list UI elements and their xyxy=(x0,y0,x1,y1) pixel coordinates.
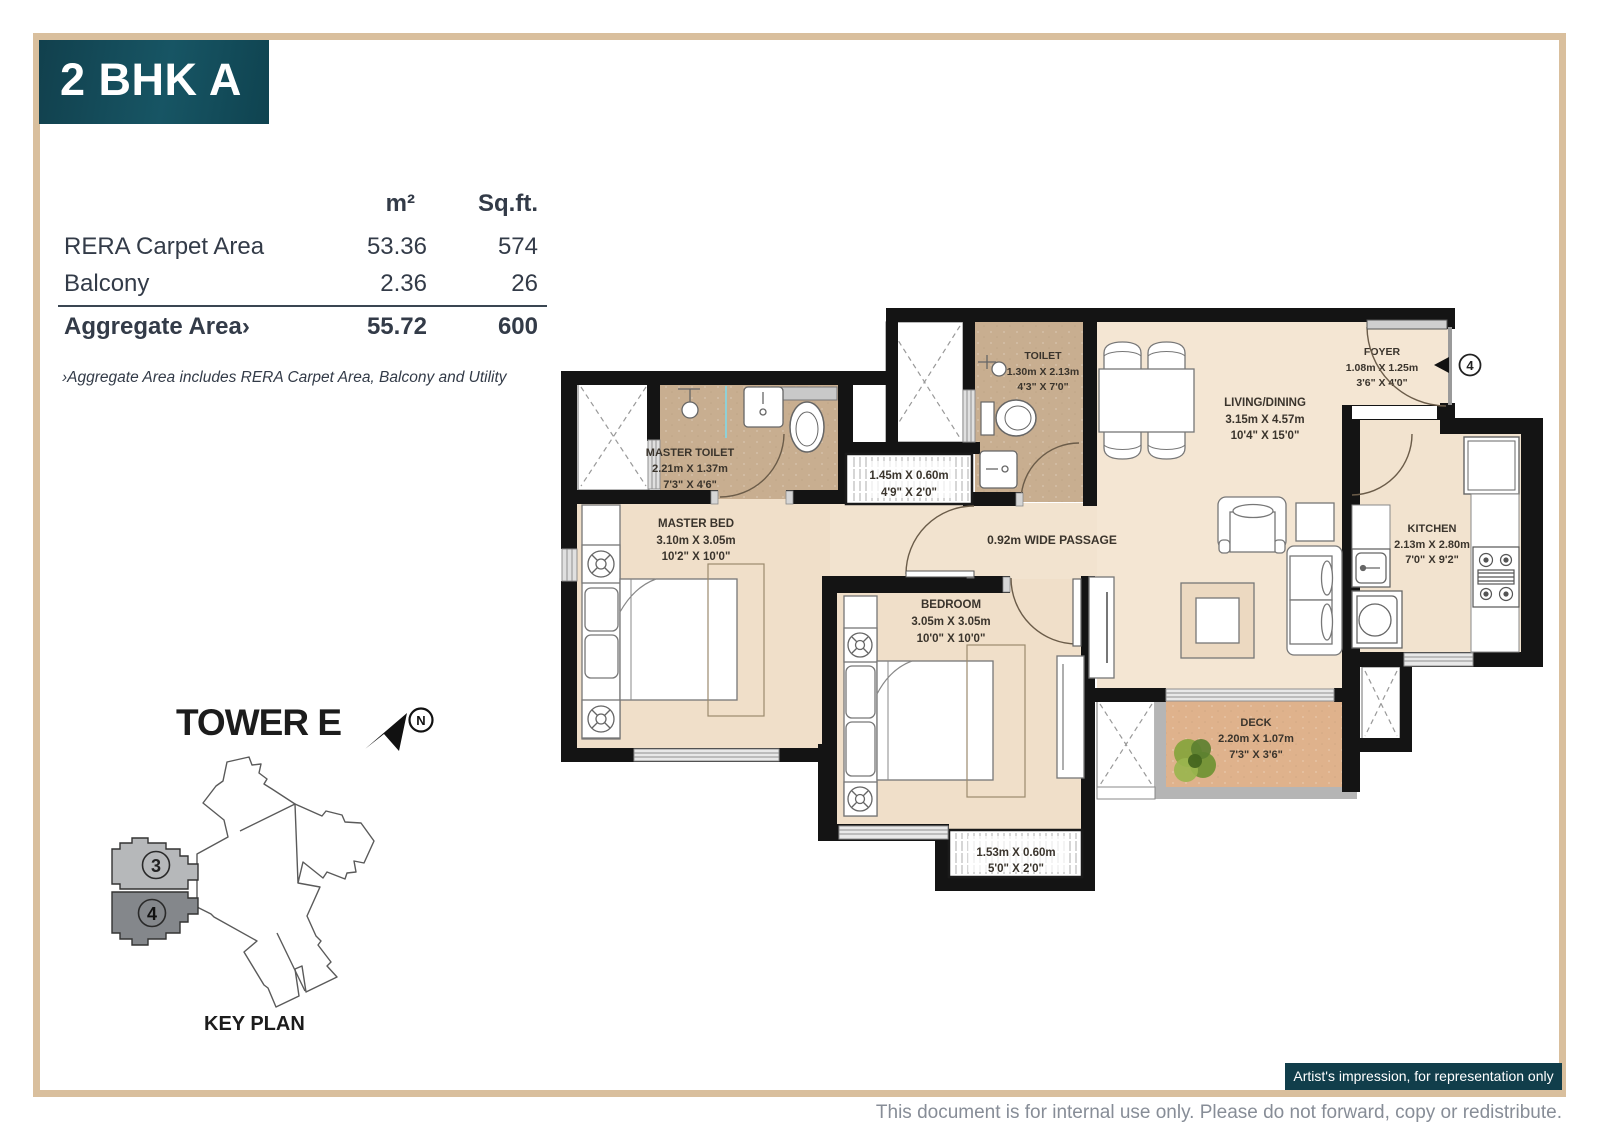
svg-text:0.92m WIDE PASSAGE: 0.92m WIDE PASSAGE xyxy=(987,533,1117,547)
svg-text:1.30m X 2.13m: 1.30m X 2.13m xyxy=(1007,366,1079,378)
svg-text:BEDROOM: BEDROOM xyxy=(921,599,981,611)
svg-text:2.20m X 1.07m: 2.20m X 1.07m xyxy=(1218,733,1294,745)
svg-text:10'4" X 15'0": 10'4" X 15'0" xyxy=(1231,430,1300,442)
svg-text:1.53m X 0.60m: 1.53m X 0.60m xyxy=(976,847,1055,859)
svg-text:KITCHEN: KITCHEN xyxy=(1408,523,1457,535)
svg-text:7'3" X 4'6": 7'3" X 4'6" xyxy=(663,479,717,491)
svg-text:LIVING/DINING: LIVING/DINING xyxy=(1224,397,1306,409)
svg-text:4: 4 xyxy=(147,904,157,924)
svg-text:MASTER TOILET: MASTER TOILET xyxy=(646,447,735,459)
svg-text:4'9" X 2'0": 4'9" X 2'0" xyxy=(881,487,937,499)
svg-text:4: 4 xyxy=(1466,358,1474,373)
svg-text:3'6" X 4'0": 3'6" X 4'0" xyxy=(1356,377,1407,389)
svg-text:DECK: DECK xyxy=(1240,717,1271,729)
svg-text:3.15m X 4.57m: 3.15m X 4.57m xyxy=(1225,414,1304,426)
svg-text:4'3" X 7'0": 4'3" X 7'0" xyxy=(1017,381,1068,393)
svg-text:3.10m X 3.05m: 3.10m X 3.05m xyxy=(656,535,735,547)
svg-text:TOILET: TOILET xyxy=(1024,350,1062,362)
svg-text:2.13m X 2.80m: 2.13m X 2.80m xyxy=(1394,539,1470,551)
svg-text:2.21m X 1.37m: 2.21m X 1.37m xyxy=(652,463,728,475)
svg-text:10'0" X 10'0": 10'0" X 10'0" xyxy=(917,633,986,645)
svg-text:1.45m X 0.60m: 1.45m X 0.60m xyxy=(869,470,948,482)
svg-text:N: N xyxy=(416,713,425,728)
svg-text:3.05m X 3.05m: 3.05m X 3.05m xyxy=(911,616,990,628)
svg-text:7'0" X 9'2": 7'0" X 9'2" xyxy=(1405,554,1459,566)
svg-text:MASTER BED: MASTER BED xyxy=(658,518,734,530)
svg-text:10'2" X 10'0": 10'2" X 10'0" xyxy=(662,551,731,563)
svg-text:3: 3 xyxy=(151,856,161,876)
svg-text:5'0" X 2'0": 5'0" X 2'0" xyxy=(988,863,1044,875)
svg-text:7'3" X 3'6": 7'3" X 3'6" xyxy=(1229,749,1283,761)
